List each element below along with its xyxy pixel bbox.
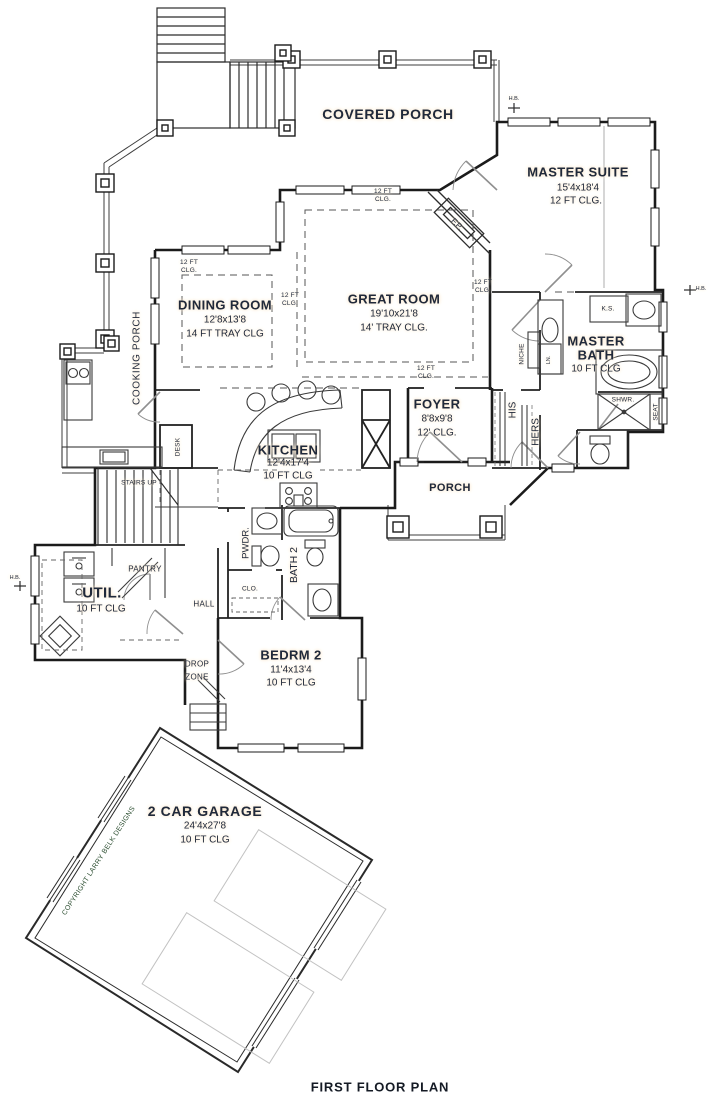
room-ceiling-master-suite: 12 FT CLG. bbox=[550, 196, 602, 207]
room-label-porch: PORCH bbox=[429, 482, 471, 494]
room-label-covered-porch: COVERED PORCH bbox=[322, 106, 453, 122]
room-label-master-suite: MASTER SUITE bbox=[527, 165, 629, 180]
label-pwdr: PWDR. bbox=[241, 527, 252, 559]
garage-structure bbox=[26, 728, 372, 1072]
ceiling-tag-line1: 12 FT bbox=[417, 365, 435, 373]
room-ceiling-kitchen: 10 FT CLG bbox=[263, 471, 312, 482]
ceiling-tag-line2: CLG. bbox=[374, 196, 392, 204]
label-hose-bib-2: H.B. bbox=[696, 286, 707, 292]
ceiling-tag-great-bottom: 12 FTCLG. bbox=[417, 365, 435, 381]
room-label-bedroom2: BEDRM 2 bbox=[260, 648, 321, 663]
label-his: HIS bbox=[508, 402, 519, 419]
room-label-cooking-porch: COOKING PORCH bbox=[132, 311, 143, 405]
room-label-util: UTIL. bbox=[82, 585, 122, 602]
label-shower: SHWR. bbox=[612, 397, 635, 404]
room-dims-master-suite: 15'4x18'4 bbox=[557, 183, 599, 194]
room-label-dining: DINING ROOM bbox=[178, 298, 272, 313]
room-label-kitchen: KITCHEN bbox=[258, 443, 319, 458]
label-desk: DESK bbox=[175, 438, 182, 457]
ceiling-tag-line2: CLG. bbox=[474, 287, 492, 295]
cooking-porch-fixtures bbox=[62, 360, 162, 467]
exterior-stairs bbox=[157, 8, 295, 128]
room-ceiling-dining: 14 FT TRAY CLG bbox=[186, 329, 264, 340]
room-ceiling-master-bath: 10 FT CLG bbox=[571, 364, 620, 375]
page-title: FIRST FLOOR PLAN bbox=[311, 1080, 449, 1095]
room-dims-bedroom2: 11'4x13'4 bbox=[270, 665, 311, 676]
exterior-walls bbox=[35, 122, 663, 748]
ceiling-tag-line1: 12 FT bbox=[474, 279, 492, 287]
ceiling-tag-line1: 12 FT bbox=[180, 259, 198, 267]
room-dims-great-room: 19'10x21'8 bbox=[370, 309, 418, 320]
label-stairs-up: STAIRS UP bbox=[121, 480, 157, 487]
ceiling-tag-great-top: 12 FTCLG. bbox=[374, 188, 392, 204]
room-ceiling-bedroom2: 10 FT CLG bbox=[266, 678, 315, 689]
label-pantry: PANTRY bbox=[128, 565, 162, 574]
room-dims-kitchen: 12'4x17'4 bbox=[267, 458, 309, 469]
room-ceiling-foyer: 12' CLG. bbox=[417, 428, 456, 439]
room-label-great-room: GREAT ROOM bbox=[348, 292, 441, 307]
label-hose-bib-3: H.B. bbox=[10, 575, 21, 581]
room-ceiling-util: 10 FT CLG bbox=[76, 604, 125, 615]
label-linen: LN. bbox=[546, 356, 552, 365]
label-hers: HERS bbox=[531, 418, 542, 446]
ceiling-tag-line1: 12 FT bbox=[374, 188, 392, 196]
ceiling-tag-line2: CLG. bbox=[180, 267, 198, 275]
ceiling-tag-line2: CLG. bbox=[417, 373, 435, 381]
floor-plan-page: COVERED PORCH MASTER SUITE 15'4x18'4 12 … bbox=[0, 0, 717, 1112]
ceiling-tag-mid: 12 FTCLG. bbox=[281, 292, 299, 308]
label-hall: HALL bbox=[193, 600, 214, 609]
room-ceiling-great-room: 14' TRAY CLG. bbox=[360, 323, 428, 334]
label-drop-zone-1: DROP bbox=[185, 660, 209, 669]
ceiling-tag-great-right: 12 FTCLG. bbox=[474, 279, 492, 295]
ceiling-tag-line1: 12 FT bbox=[281, 292, 299, 300]
label-niche: NICHE bbox=[519, 343, 526, 364]
room-label-garage: 2 CAR GARAGE bbox=[148, 803, 263, 819]
room-label-foyer: FOYER bbox=[414, 397, 461, 412]
utility-fixtures bbox=[40, 548, 226, 730]
room-dims-garage: 24'4x27'8 bbox=[184, 821, 226, 832]
windows bbox=[31, 118, 667, 752]
ceiling-tag-dining: 12 FTCLG. bbox=[180, 259, 198, 275]
room-dims-foyer: 8'8x9'8 bbox=[421, 414, 452, 425]
ceiling-tag-line2: CLG. bbox=[281, 300, 299, 308]
doors bbox=[124, 161, 618, 674]
room-dims-dining: 12'8x13'8 bbox=[204, 315, 246, 326]
label-knee-space: K.S. bbox=[601, 306, 614, 313]
room-label-master-bath-2: BATH bbox=[578, 348, 615, 363]
label-seat: SEAT bbox=[653, 403, 660, 420]
label-drop-zone-2: ZONE bbox=[185, 673, 208, 682]
room-label-master-bath-1: MASTER bbox=[567, 334, 624, 349]
label-clo: CLO. bbox=[242, 586, 258, 593]
label-bath2: BATH 2 bbox=[288, 547, 300, 583]
room-ceiling-garage: 10 FT CLG bbox=[180, 835, 229, 846]
label-hose-bib-1: H.B. bbox=[509, 96, 520, 102]
